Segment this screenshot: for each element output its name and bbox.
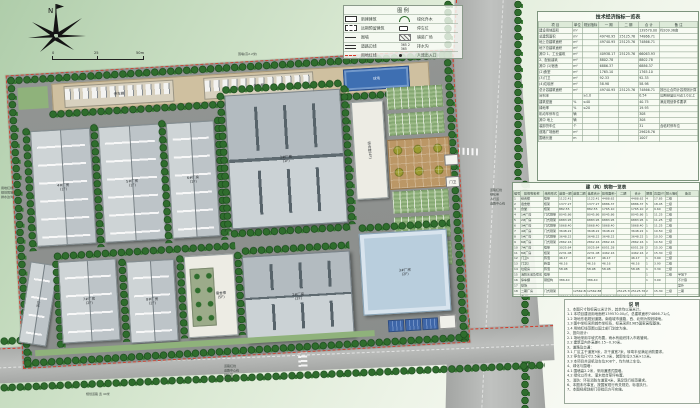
legend-label: 铺装广场 bbox=[417, 35, 433, 40]
legend-symbol-tree bbox=[399, 16, 410, 22]
factory-4-floors: (1F) bbox=[60, 187, 67, 191]
warehouse-label: 仓库 bbox=[36, 300, 41, 308]
notes-list: 1、本图尺寸除标高以米计外，其余均以毫米计。 1.1 本项目建设用地面积1395… bbox=[567, 308, 700, 393]
table-cell: 49740.95 bbox=[601, 294, 616, 297]
legend-symbol-redline bbox=[345, 55, 356, 56]
dorm-label: 宿舍楼 bbox=[215, 291, 226, 296]
parking-row bbox=[386, 85, 443, 110]
list-item: 7、本图经规划部门审批后方可实施。 bbox=[567, 388, 700, 393]
factory-3: 3#厂房(2F) bbox=[359, 229, 452, 316]
parking-row bbox=[388, 111, 445, 136]
table-cell: 25125.76 bbox=[616, 294, 630, 297]
site-plan-drawing: { "meta": {"sheet_title": "厂区总平面图"}, "co… bbox=[0, 0, 700, 408]
factory-3-floors: (2F) bbox=[402, 272, 409, 276]
factory-2: 2#厂房(2F) bbox=[242, 250, 355, 342]
factory-3-label: 3#厂房 bbox=[399, 268, 411, 273]
legend-symbol-future-building bbox=[345, 25, 357, 31]
legend-label: 新建建筑 bbox=[361, 16, 377, 21]
hedge bbox=[17, 86, 48, 110]
north-arrow: N bbox=[20, 4, 90, 60]
west-annotation-stack: 用地红线规划围墙排水边沟 bbox=[1, 186, 13, 200]
dorm-floors: (5F) bbox=[217, 295, 224, 299]
office-building: 综合楼(4F) bbox=[351, 100, 389, 200]
legend-label: 停车位 bbox=[417, 26, 429, 31]
table-cell: 围墙长度 bbox=[538, 136, 572, 142]
solar-panel bbox=[422, 317, 439, 330]
scale-tick-2: 50m bbox=[136, 51, 144, 55]
factory-1-floors: (1F) bbox=[283, 159, 290, 163]
legend-label: 绿化乔木 bbox=[417, 16, 433, 21]
factory-1-label: 1#厂房 bbox=[280, 155, 292, 160]
office-floors: (4F) bbox=[368, 152, 372, 159]
gate-label: 门卫 bbox=[449, 179, 456, 183]
table-cell bbox=[619, 136, 639, 142]
table-cell bbox=[582, 136, 599, 142]
indicators-title: 技术经济指标一览表 bbox=[538, 12, 698, 21]
factory-2-label: 2#厂房 bbox=[292, 292, 304, 297]
solar-panel bbox=[388, 319, 405, 332]
utility-hut bbox=[439, 314, 457, 329]
legend-symbol-paving bbox=[399, 34, 411, 41]
skylights bbox=[242, 166, 334, 215]
north-label: N bbox=[48, 7, 53, 15]
legend-label: 道路边线 bbox=[361, 44, 377, 49]
table-cell bbox=[513, 294, 520, 297]
table-cell bbox=[659, 136, 698, 142]
factory-5-floors: (1F) bbox=[129, 183, 136, 187]
skylights bbox=[238, 102, 330, 151]
table-cell: 1007 bbox=[638, 136, 659, 142]
table-cell: 合 计 bbox=[520, 294, 543, 297]
table-cell: 12562.88 bbox=[572, 294, 586, 297]
east-annotation-stack: 道路红线绿化带人行道道路中心线 bbox=[490, 188, 505, 206]
legend-panel: 图 例 新建建筑 绿化乔木 远期预留建筑 停车位 围墙 铺装广场 道路边线 36… bbox=[343, 5, 463, 59]
factory-5-label: 5#厂房 bbox=[126, 179, 138, 184]
table-cell: 51129.78 bbox=[586, 294, 601, 297]
parking-row bbox=[392, 189, 449, 214]
factory-6: 6#厂房(1F) bbox=[166, 120, 221, 239]
scale-tick-0: 0 bbox=[52, 51, 54, 55]
entrance-plaza bbox=[387, 136, 452, 190]
indicators-table: 项 目单位规划指标一 期二 期合 计备 注建设用地面积m²139570.00约2… bbox=[538, 21, 698, 141]
legend-label: 人流出入口 bbox=[417, 53, 437, 58]
factory-7-label: 7#厂房 bbox=[83, 297, 95, 302]
factory-8-label: 8#厂房 bbox=[146, 297, 158, 302]
list-item: 人行道 bbox=[224, 378, 239, 383]
factory-7: 7#厂房(2F) bbox=[58, 258, 121, 343]
factory-site: 停车棚 停车棚 球场 4#厂房(1F) 5#厂房(1F) 6#厂房(1F) 1#… bbox=[6, 49, 471, 369]
list-item: 道路中心线 bbox=[490, 202, 505, 207]
table-cell bbox=[543, 294, 558, 297]
legend-title: 图 例 bbox=[344, 6, 462, 14]
legend-label: 远期预留建筑 bbox=[361, 26, 384, 31]
table-cell: 74866.71 bbox=[630, 294, 645, 297]
factory-7-floors: (2F) bbox=[86, 301, 93, 305]
scale-bar: 0 25 50m bbox=[52, 54, 144, 62]
scale-tick-1: 25 bbox=[94, 51, 99, 55]
gatehouse-south: 门卫 bbox=[445, 176, 460, 188]
factory-6-floors: (1F) bbox=[190, 179, 197, 183]
skylights bbox=[253, 260, 340, 291]
factory-4: 4#厂房(1F) bbox=[30, 128, 97, 247]
table-cell: 38566.90 bbox=[558, 294, 572, 297]
factory-2-floors: (2F) bbox=[295, 296, 302, 300]
buildings-list-panel: 建（构）筑物一览表 编号建筑物名称结构形式基底一期基底二期基底合计建筑面积一期二… bbox=[512, 182, 700, 297]
legend-label: 排水沟 bbox=[417, 44, 429, 49]
crosswalk bbox=[458, 147, 478, 155]
factory-8-floors: (2F) bbox=[149, 301, 156, 305]
factory-5: 5#厂房(1F) bbox=[98, 123, 167, 242]
court-label: 球场 bbox=[373, 76, 380, 80]
solar-panel bbox=[405, 318, 422, 331]
legend-symbol-wall bbox=[345, 37, 356, 38]
east-road-tree-row-east-upper bbox=[514, 0, 523, 180]
indicators-panel: 技术经济指标一览表 项 目单位规划指标一 期二 期合 计备 注建设用地面积m²1… bbox=[537, 11, 699, 181]
dorm-courtyard bbox=[189, 268, 216, 327]
table-cell: m bbox=[572, 136, 582, 142]
factory-6-label: 6#厂房 bbox=[187, 175, 199, 180]
legend-symbol-road-edge bbox=[345, 45, 356, 49]
list-item: 排水边沟 bbox=[1, 195, 13, 200]
table-cell bbox=[653, 294, 665, 297]
notes-panel: 说 明 1、本图尺寸除标高以米计外，其余均以毫米计。 1.1 本项目建设用地面积… bbox=[564, 299, 700, 404]
dormitory: 宿舍楼(5F) bbox=[184, 253, 239, 338]
table-cell bbox=[645, 294, 653, 297]
legend-label: 用地红线 bbox=[361, 53, 377, 58]
table-cell bbox=[665, 294, 677, 297]
table-cell bbox=[599, 136, 619, 142]
legend-symbol-new-building bbox=[345, 16, 357, 22]
office-label: 综合楼 bbox=[367, 141, 372, 152]
legend-label: 围墙 bbox=[361, 35, 369, 40]
south-annotation-stack: 道路红线道路中心线绿化带人行道 bbox=[224, 364, 239, 382]
factory-1: 1#厂房(1F) bbox=[224, 89, 348, 230]
south-road-note: 规划道路 宽 40米 bbox=[86, 392, 110, 397]
legend-symbol-car bbox=[399, 26, 408, 32]
north-wall-annotation: 围墙(高2.2米) bbox=[238, 52, 257, 57]
legend-symbol-entrance bbox=[399, 54, 402, 57]
carport-label: 停车棚 bbox=[114, 92, 125, 97]
factory-4-label: 4#厂房 bbox=[57, 183, 69, 188]
legend-symbol-ditch: 365 2 365 bbox=[401, 43, 415, 51]
factory-8: 8#厂房(2F) bbox=[126, 259, 179, 344]
skylights bbox=[256, 300, 343, 331]
buildings-list-table: 编号建筑物名称结构形式基底一期基底二期基底合计建筑面积一期二期合计层数高度(m)… bbox=[513, 191, 699, 298]
gatehouse-north bbox=[444, 154, 459, 166]
buildings-list-title: 建（构）筑物一览表 bbox=[513, 183, 699, 191]
table-cell bbox=[677, 294, 699, 297]
